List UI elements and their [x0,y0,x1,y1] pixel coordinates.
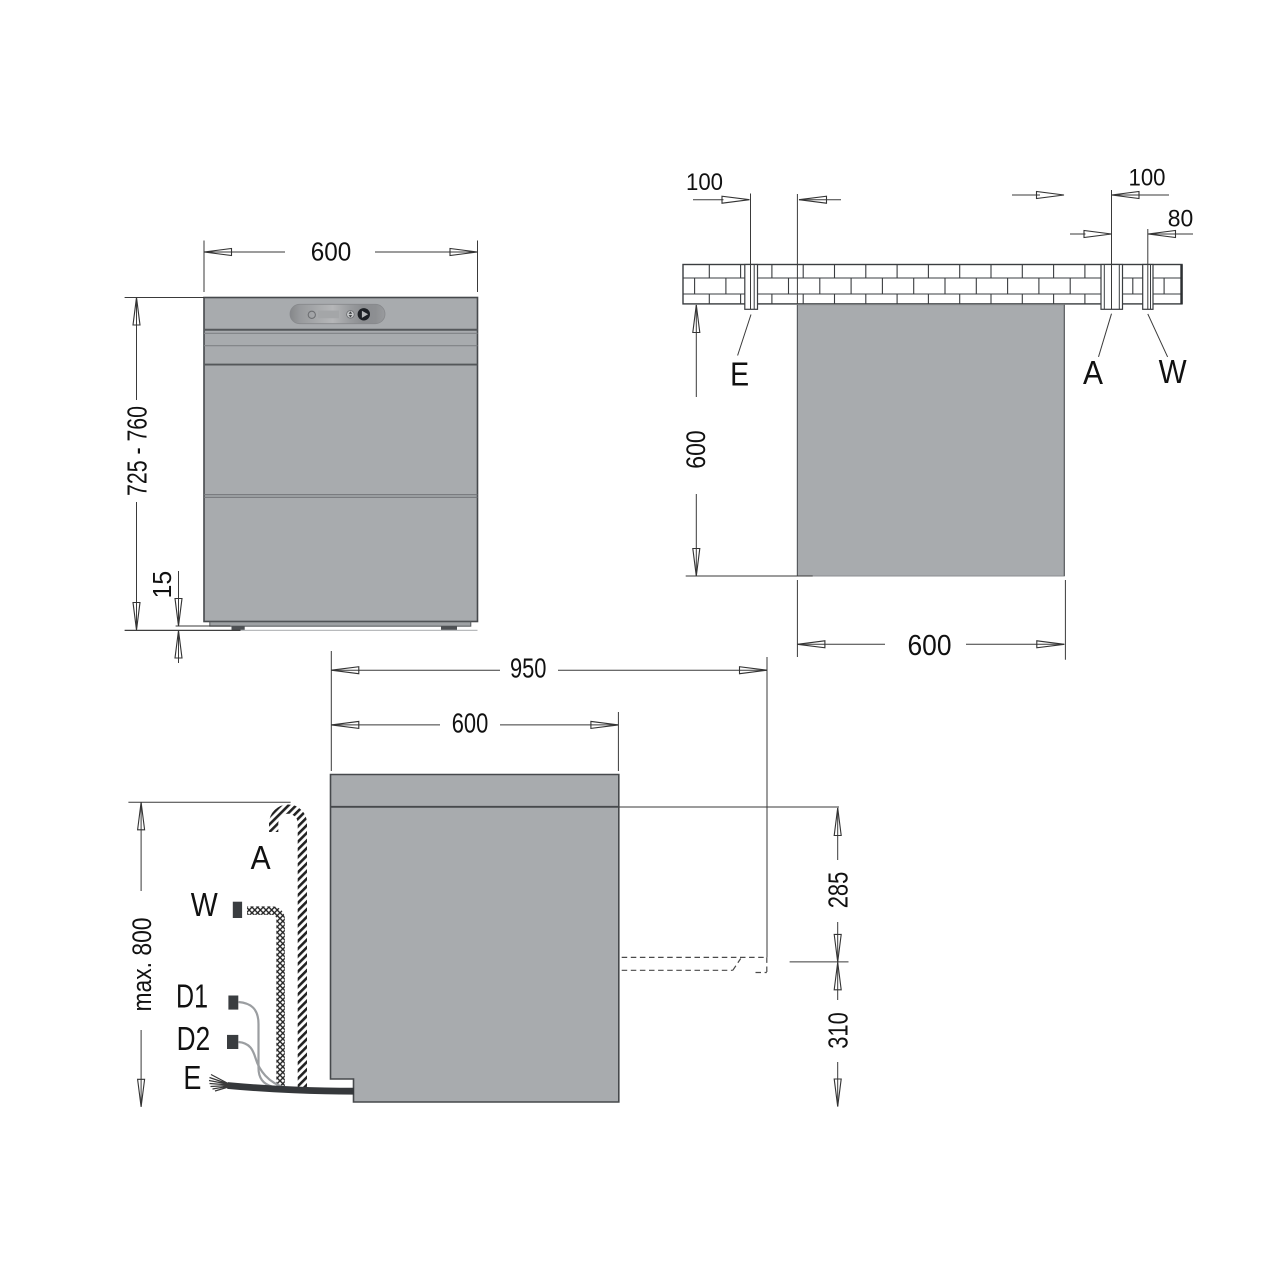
svg-text:W: W [191,886,219,923]
svg-text:E: E [183,1059,201,1096]
svg-text:725 - 760: 725 - 760 [122,406,153,496]
svg-text:D2: D2 [177,1020,211,1057]
svg-text:E: E [730,355,749,392]
svg-text:600: 600 [311,237,352,267]
svg-text:600: 600 [908,630,952,662]
svg-text:600: 600 [681,430,711,469]
svg-text:600: 600 [452,708,489,739]
svg-text:D1: D1 [176,978,208,1015]
svg-text:A: A [251,839,271,876]
svg-text:310: 310 [823,1012,854,1049]
svg-text:950: 950 [510,653,547,684]
svg-text:W: W [1159,353,1188,390]
svg-text:285: 285 [823,872,854,909]
svg-text:100: 100 [1129,165,1166,192]
svg-text:100: 100 [686,169,723,196]
svg-text:max. 800: max. 800 [127,918,157,1012]
svg-text:80: 80 [1168,206,1194,233]
svg-text:A: A [1083,354,1103,391]
svg-text:15: 15 [147,571,177,599]
